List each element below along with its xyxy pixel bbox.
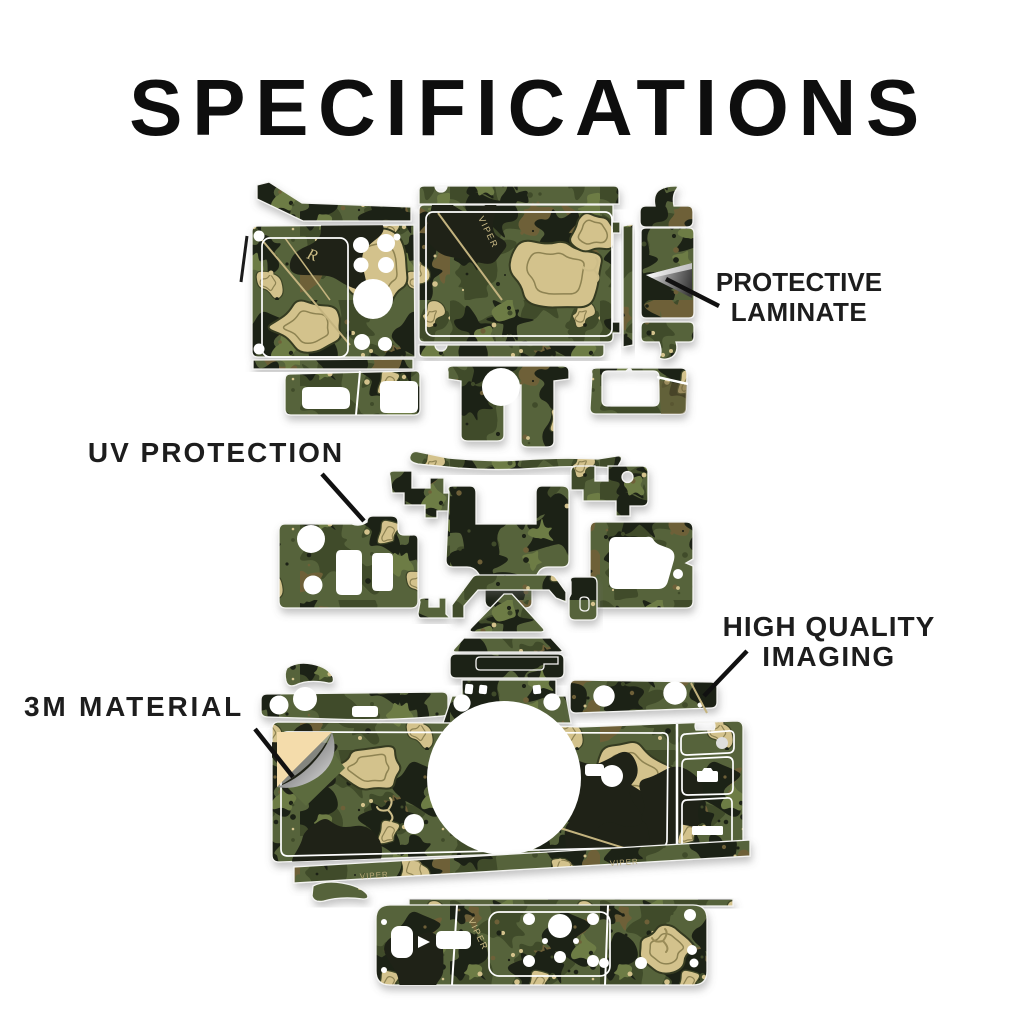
svg-text:UV PROTECTION: UV PROTECTION [88,437,344,468]
svg-text:SPECIFICATIONS: SPECIFICATIONS [129,63,929,152]
svg-text:3M MATERIAL: 3M MATERIAL [24,691,244,722]
svg-text:LAMINATE: LAMINATE [731,297,867,327]
svg-text:IMAGING: IMAGING [762,641,895,672]
svg-text:HIGH QUALITY: HIGH QUALITY [723,611,936,642]
svg-text:PROTECTIVE: PROTECTIVE [716,267,882,297]
svg-text:VIPER: VIPER [610,857,640,868]
svg-text:VIPER: VIPER [360,870,390,881]
